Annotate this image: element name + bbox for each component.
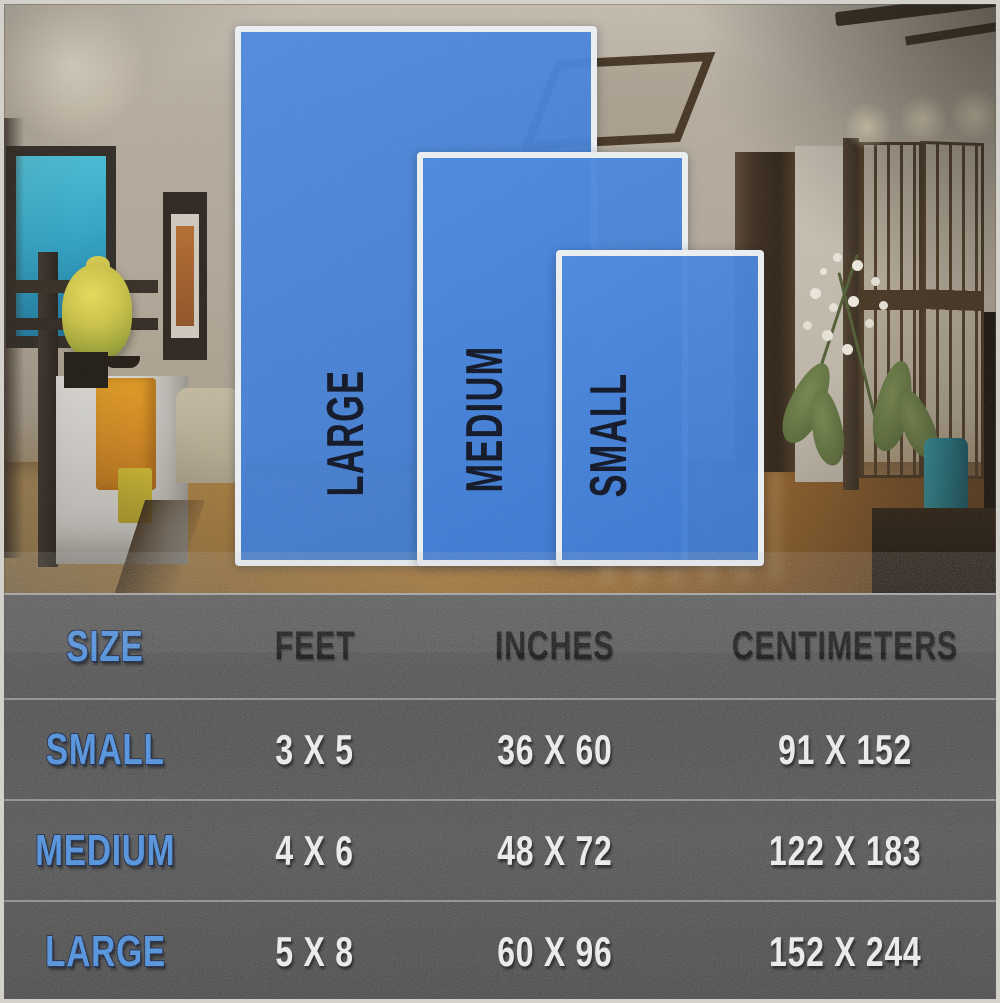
cell-size: LARGE <box>0 927 210 977</box>
cell-size: SMALL <box>0 725 210 775</box>
cell-feet-value: 4 X 6 <box>276 827 354 875</box>
header-feet-label: FEET <box>275 624 356 669</box>
table-row-small: SMALL 3 X 5 36 X 60 91 X 152 <box>0 700 1000 801</box>
rug-size-small: SMALL <box>556 250 764 566</box>
cell-inches: 60 X 96 <box>420 928 690 976</box>
cell-feet: 3 X 5 <box>210 726 420 774</box>
size-table: SIZE FEET INCHES CENTIMETERS SMALL 3 X 5… <box>0 593 1000 1003</box>
cell-inches: 48 X 72 <box>420 827 690 875</box>
rug-size-infographic: LARGE MEDIUM SMALL SIZE FEET INCHES CENT… <box>0 0 1000 1003</box>
header-size-label: SIZE <box>66 622 143 672</box>
header-feet: FEET <box>210 624 420 669</box>
header-centimeters-label: CENTIMETERS <box>732 624 958 669</box>
cell-inches-value: 36 X 60 <box>497 726 612 774</box>
header-inches-label: INCHES <box>495 624 614 669</box>
cell-centimeters-value: 122 X 183 <box>769 827 921 875</box>
cell-inches-value: 48 X 72 <box>497 827 612 875</box>
cell-feet: 4 X 6 <box>210 827 420 875</box>
rug-label-large: LARGE <box>316 370 376 497</box>
table-header-row: SIZE FEET INCHES CENTIMETERS <box>0 595 1000 700</box>
cell-centimeters: 152 X 244 <box>690 928 1000 976</box>
header-centimeters: CENTIMETERS <box>690 624 1000 669</box>
cell-size-value: SMALL <box>46 725 165 775</box>
cell-size: MEDIUM <box>0 826 210 876</box>
room-photo: LARGE MEDIUM SMALL <box>0 0 1000 593</box>
rug-label-small: SMALL <box>579 373 639 498</box>
cell-centimeters-value: 152 X 244 <box>769 928 921 976</box>
cell-centimeters: 91 X 152 <box>690 726 1000 774</box>
rug-label-medium: MEDIUM <box>455 346 515 493</box>
cell-feet: 5 X 8 <box>210 928 420 976</box>
cell-feet-value: 3 X 5 <box>276 726 354 774</box>
cell-feet-value: 5 X 8 <box>276 928 354 976</box>
table-row-medium: MEDIUM 4 X 6 48 X 72 122 X 183 <box>0 801 1000 902</box>
header-size: SIZE <box>0 622 210 672</box>
header-inches: INCHES <box>420 624 690 669</box>
cell-centimeters-value: 91 X 152 <box>778 726 912 774</box>
table-row-large: LARGE 5 X 8 60 X 96 152 X 244 <box>0 902 1000 1003</box>
cell-inches: 36 X 60 <box>420 726 690 774</box>
cell-centimeters: 122 X 183 <box>690 827 1000 875</box>
cell-size-value: LARGE <box>45 927 166 977</box>
cell-inches-value: 60 X 96 <box>497 928 612 976</box>
cell-size-value: MEDIUM <box>35 826 175 876</box>
